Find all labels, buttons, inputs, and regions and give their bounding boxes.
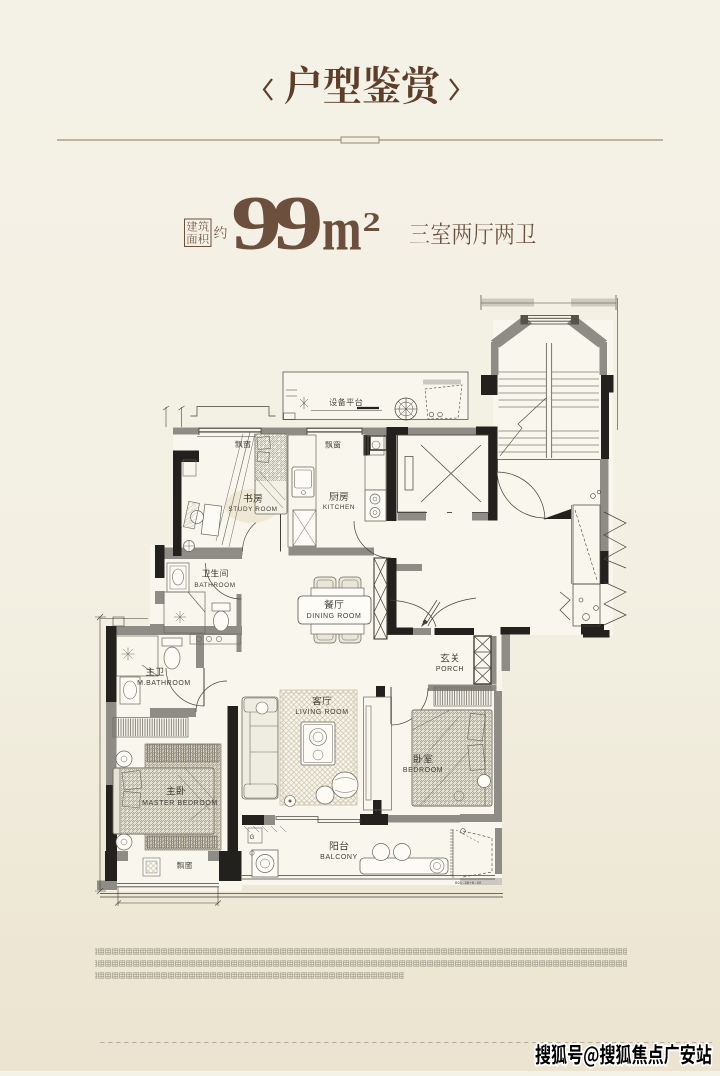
svg-text:G: G bbox=[250, 835, 255, 841]
svg-text:BEDROOM: BEDROOM bbox=[403, 767, 443, 774]
svg-text:99: 99 bbox=[231, 180, 320, 265]
svg-text:DINING ROOM: DINING ROOM bbox=[307, 613, 362, 620]
svg-text:B91.1B+0.1S: B91.1B+0.1S bbox=[455, 882, 482, 886]
svg-text:LIVING ROOM: LIVING ROOM bbox=[295, 709, 348, 716]
svg-text:BATHROOM: BATHROOM bbox=[194, 582, 235, 589]
svg-text:M.BATHROOM: M.BATHROOM bbox=[137, 680, 191, 687]
svg-text:KITCHEN: KITCHEN bbox=[323, 504, 355, 511]
svg-text:BALCONY: BALCONY bbox=[320, 854, 358, 861]
svg-text:STUDY ROOM: STUDY ROOM bbox=[228, 506, 277, 513]
svg-text:PORCH: PORCH bbox=[436, 666, 464, 673]
svg-text:MASTER BEDROOM: MASTER BEDROOM bbox=[142, 800, 218, 807]
svg-text:2: 2 bbox=[363, 207, 381, 237]
svg-text:m: m bbox=[322, 195, 362, 263]
